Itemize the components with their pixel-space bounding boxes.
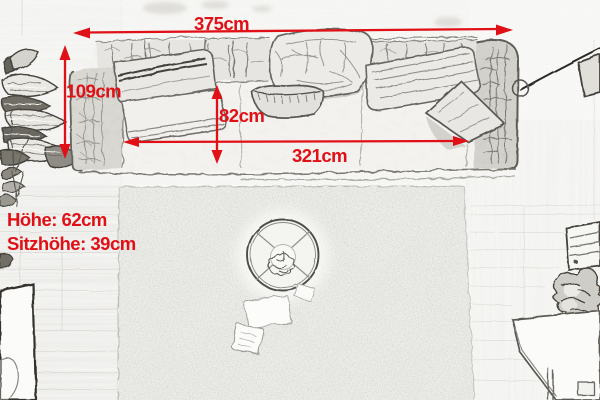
svg-text:321cm: 321cm (292, 145, 347, 166)
svg-text:Höhe: 62cm: Höhe: 62cm (7, 209, 107, 230)
svg-text:Sitzhöhe: 39cm: Sitzhöhe: 39cm (7, 233, 136, 254)
svg-text:375cm: 375cm (194, 13, 249, 34)
svg-text:82cm: 82cm (219, 105, 264, 126)
svg-text:109cm: 109cm (66, 81, 121, 102)
